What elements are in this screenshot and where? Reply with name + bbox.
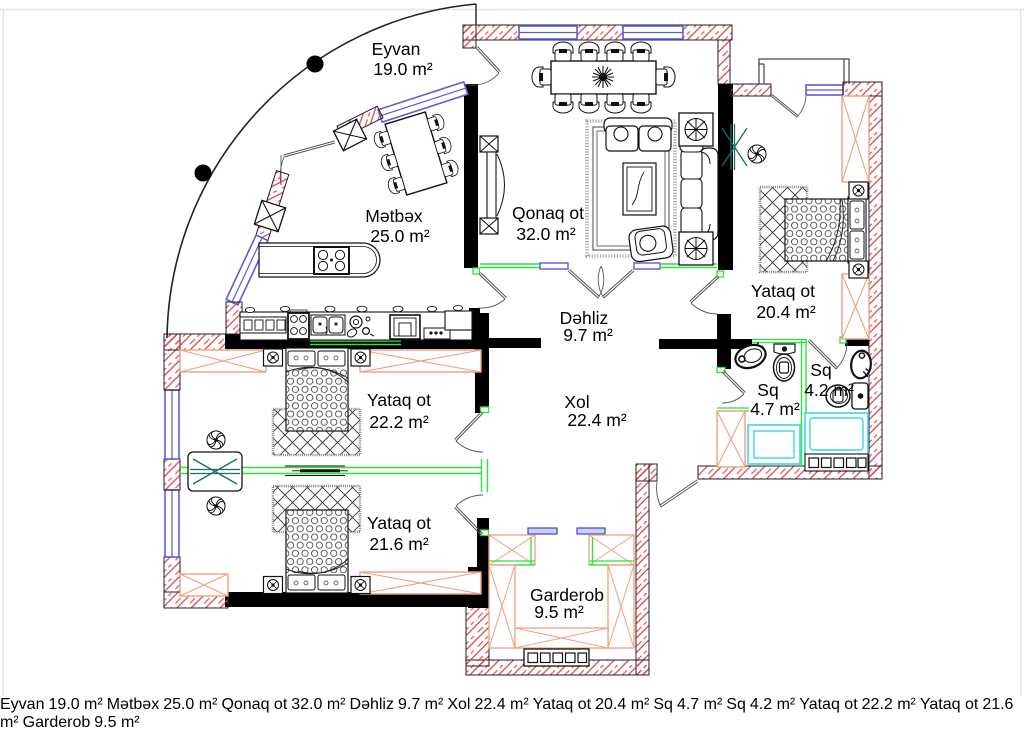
svg-text:4.2 m²: 4.2 m² xyxy=(804,380,854,400)
svg-text:Yataq ot: Yataq ot xyxy=(367,513,431,533)
svg-text:22.4 m²: 22.4 m² xyxy=(567,410,626,430)
svg-text:Qonaq ot: Qonaq ot xyxy=(512,203,584,223)
svg-text:4.7 m²: 4.7 m² xyxy=(750,399,800,419)
svg-text:Sq: Sq xyxy=(757,380,778,400)
svg-text:9.5 m²: 9.5 m² xyxy=(534,602,584,622)
svg-text:19.0 m²: 19.0 m² xyxy=(373,59,432,79)
svg-text:Sq: Sq xyxy=(810,360,831,380)
svg-text:Xol: Xol xyxy=(564,392,589,412)
svg-text:22.2 m²: 22.2 m² xyxy=(369,412,428,432)
svg-text:Yataq ot: Yataq ot xyxy=(367,390,431,410)
svg-text:Mətbəx: Mətbəx xyxy=(365,206,423,226)
svg-text:Eyvan: Eyvan xyxy=(372,39,421,59)
svg-text:9.7 m²: 9.7 m² xyxy=(563,325,613,345)
svg-text:21.6 m²: 21.6 m² xyxy=(369,534,428,554)
svg-text:20.4 m²: 20.4 m² xyxy=(756,302,815,322)
svg-text:32.0 m²: 32.0 m² xyxy=(516,224,575,244)
svg-text:25.0 m²: 25.0 m² xyxy=(370,226,429,246)
svg-text:Yataq ot: Yataq ot xyxy=(751,281,815,301)
